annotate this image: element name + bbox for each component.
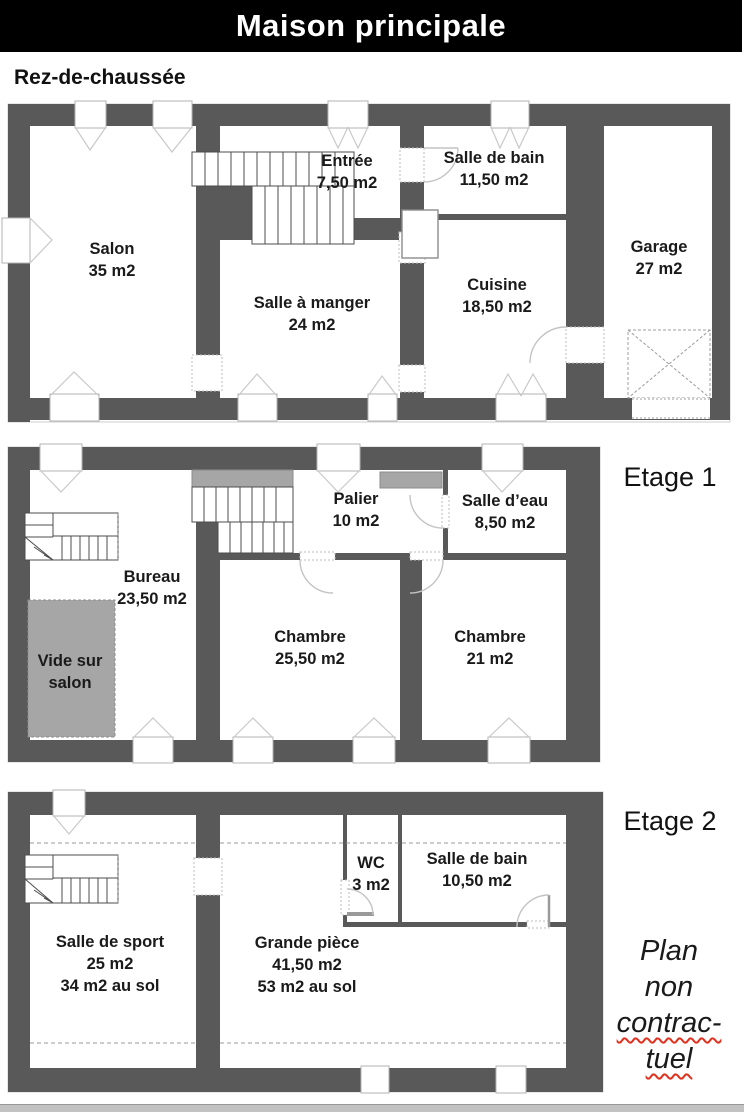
disclaimer-note: Plan non contrac- tuel [598,933,740,1077]
room-area-entree: 7,50 m2 [317,174,378,192]
room-name-salle-de-bain: Salle de bain [444,149,545,167]
room-area-sol-salle-de-sport: 34 m2 au sol [60,977,159,995]
room-area-garage: 27 m2 [636,260,683,278]
room-name-chambre-1: Chambre [274,628,346,646]
page: Maison principale Rez-de-chaussée [0,0,744,1112]
room-area-salle-d-eau: 8,50 m2 [475,514,536,532]
room-area-chambre-1: 25,50 m2 [275,650,345,668]
room-area-grande-piece: 41,50 m2 [272,956,342,974]
room-name-bureau: Bureau [124,568,181,586]
room-area-chambre-2: 21 m2 [467,650,514,668]
page-title: Maison principale [236,8,506,44]
room-name-chambre-2: Chambre [454,628,526,646]
room-area-sol-grande-piece: 53 m2 au sol [257,978,356,996]
room-area-cuisine: 18,50 m2 [462,298,532,316]
room-name-palier: Palier [334,490,380,508]
room-name-wc: WC [357,854,385,872]
room-name-grande-piece: Grande pièce [255,934,360,952]
wc-door-leaf [347,912,374,916]
floor-label-rez-de-chaussee: Rez-de-chaussée [14,66,186,90]
garage-door [632,398,710,419]
floor-plan-etage-1: Palier 10 m2 Salle d’eau 8,50 m2 Bureau … [0,440,744,770]
room-name-cuisine: Cuisine [467,276,527,294]
stairs-left [25,855,118,903]
room-name-salle-de-sport: Salle de sport [56,933,165,951]
room-name-garage: Garage [631,238,688,256]
room-name-entree: Entrée [321,152,372,170]
room-area-salle-a-manger: 24 m2 [289,316,336,334]
room-name-salon: Salon [90,240,135,258]
room-name-salle-a-manger: Salle à manger [254,294,371,312]
bathroom-fixture [402,210,438,258]
room-area-salle-de-bain-2: 10,50 m2 [442,872,512,890]
room-area-salle-de-sport: 25 m2 [87,955,134,973]
room-name-salle-de-bain-2: Salle de bain [427,850,528,868]
room-area-salon: 35 m2 [89,262,136,280]
vide-sur-salon-line1: Vide sur [38,652,103,670]
room-name-salle-d-eau: Salle d’eau [462,492,548,510]
vide-sur-salon-line2: salon [48,674,91,692]
title-bar: Maison principale [0,0,742,52]
room-area-salle-de-bain: 11,50 m2 [460,171,529,189]
disclaimer-line-2: non [598,969,740,1005]
disclaimer-line-3: contrac- [598,1005,740,1041]
bottom-separator-bar [0,1104,744,1112]
disclaimer-line-4: tuel [598,1041,740,1077]
room-area-palier: 10 m2 [333,512,380,530]
floor-plan-rez-de-chaussee: Salon 35 m2 Entrée 7,50 m2 Salle de bain… [0,100,744,436]
disclaimer-line-1: Plan [598,933,740,969]
room-area-wc: 3 m2 [352,876,390,894]
stairs-left [25,513,118,560]
garage-features [628,330,710,419]
room-area-bureau: 23,50 m2 [117,590,187,608]
